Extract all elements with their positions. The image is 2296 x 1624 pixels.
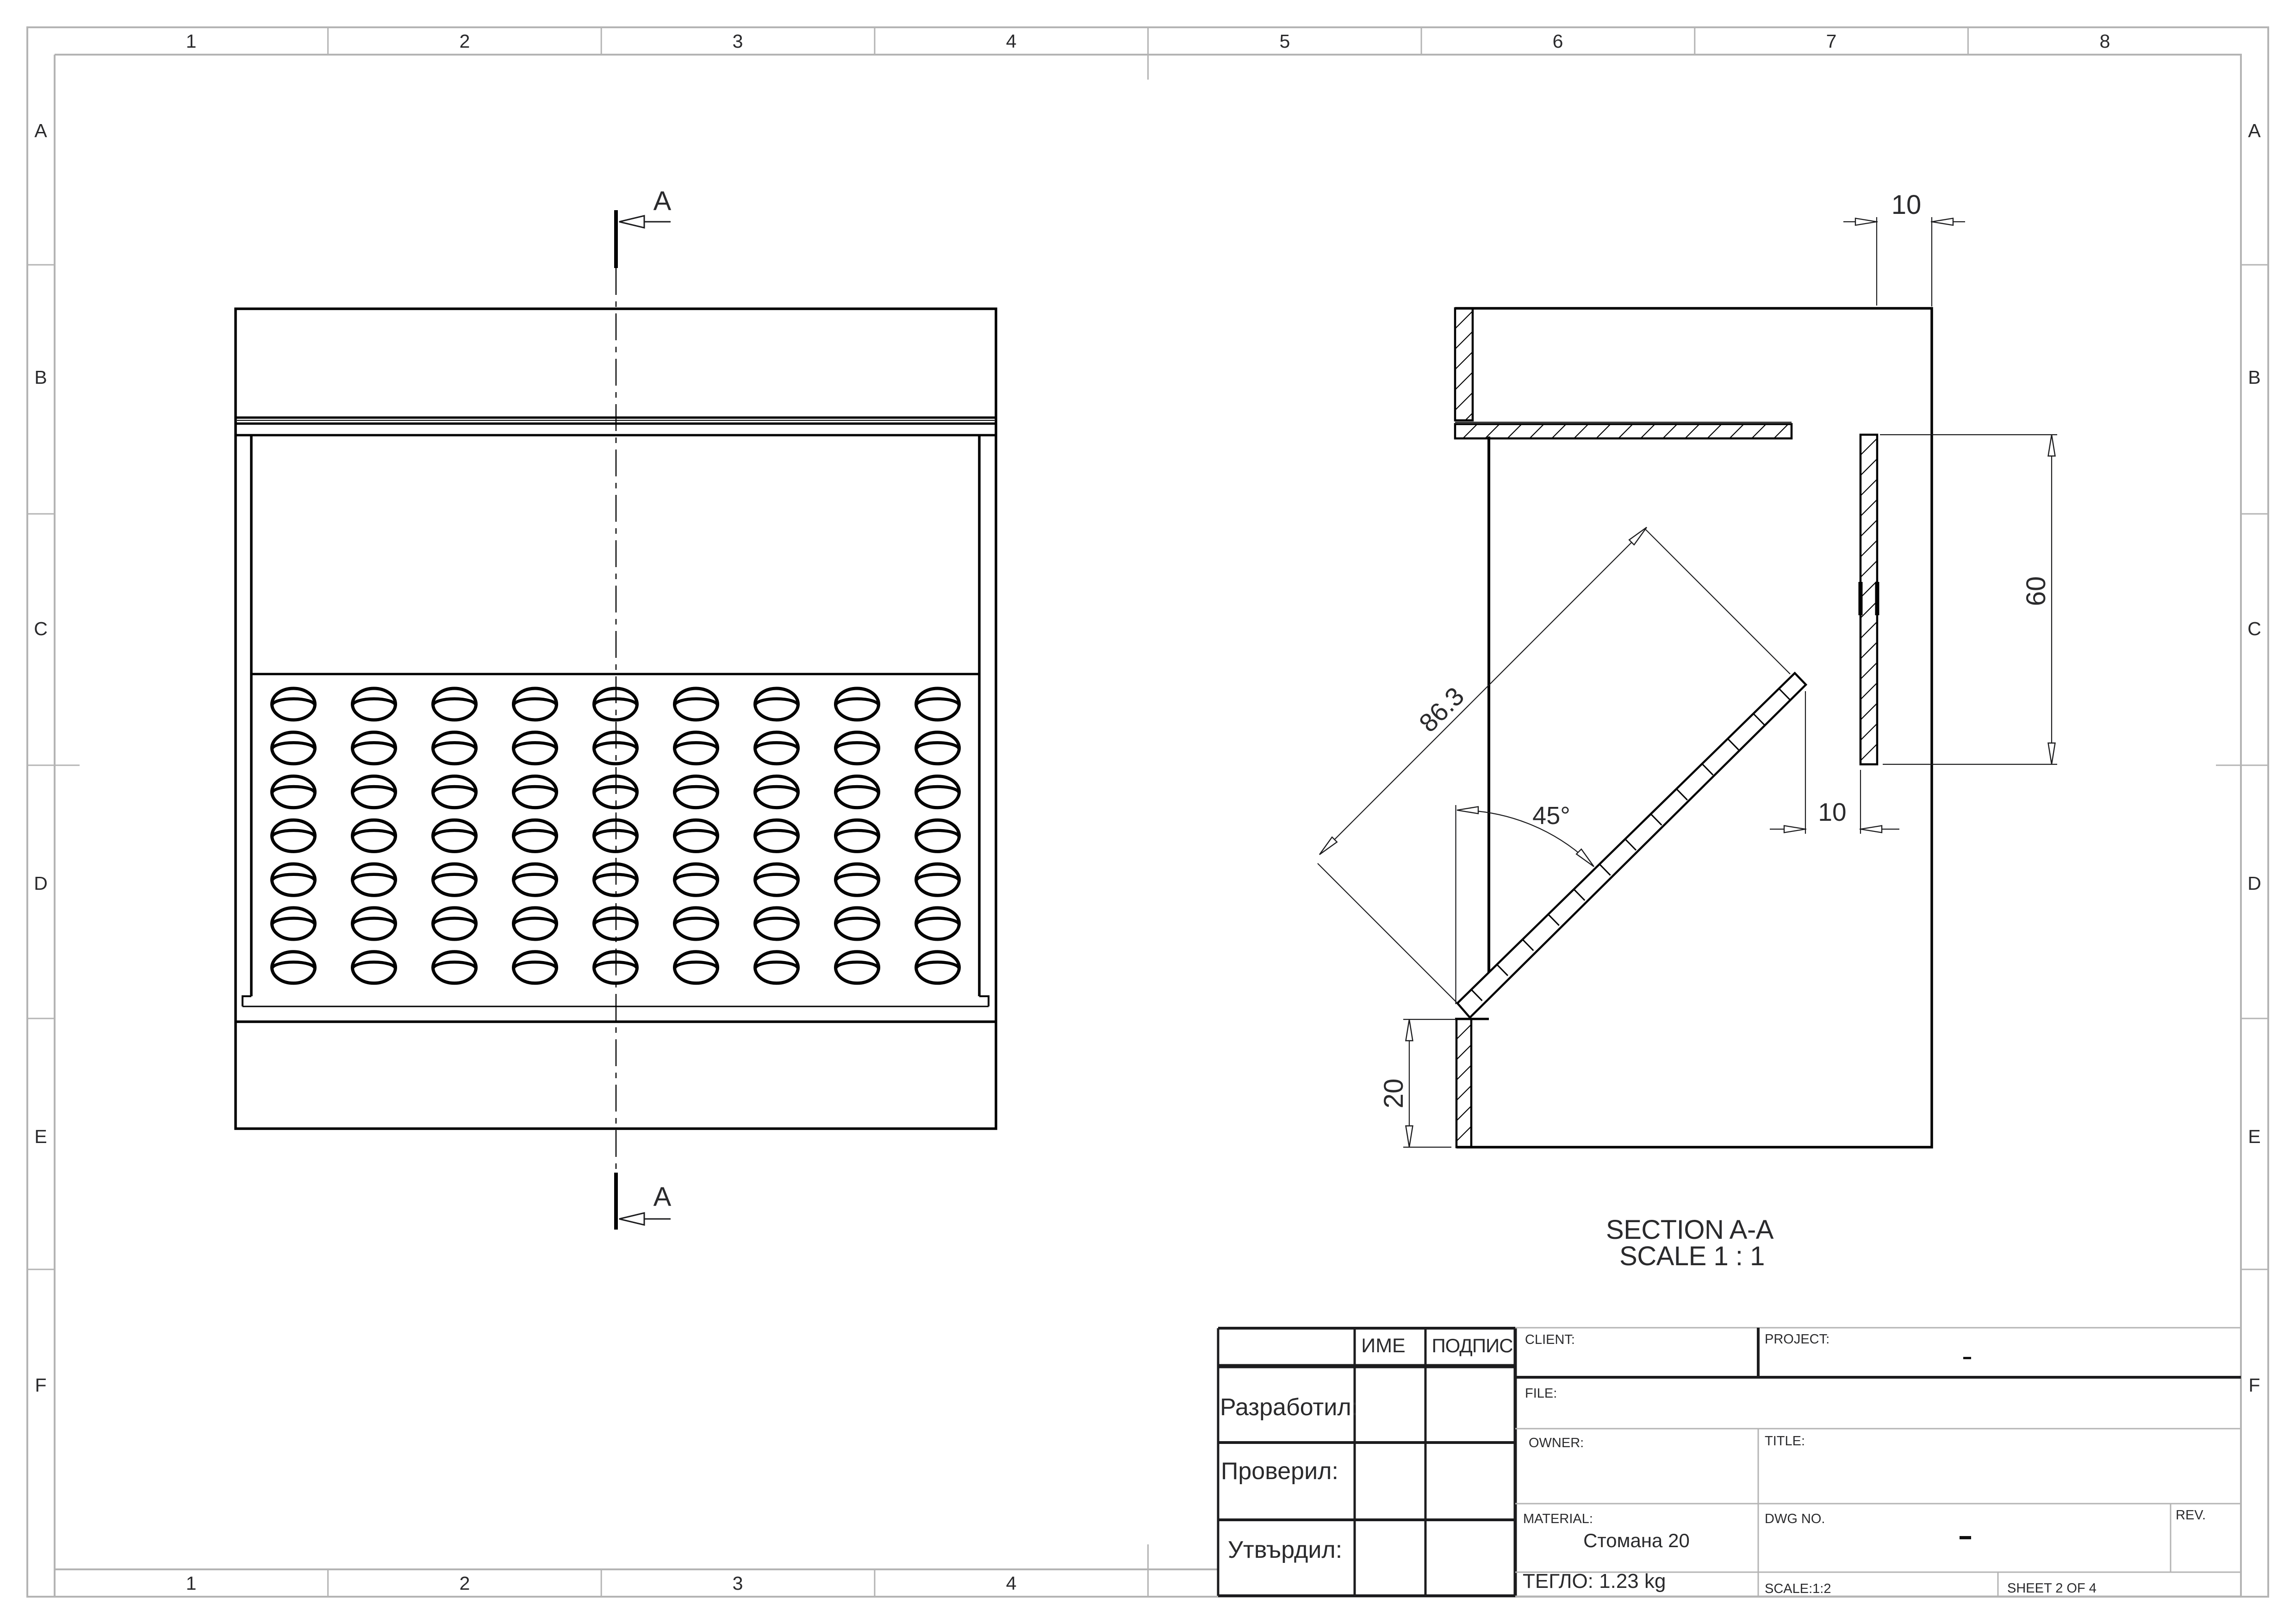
svg-text:Разработил:: Разработил: (1220, 1394, 1358, 1421)
svg-text:2: 2 (460, 31, 470, 52)
svg-text:3: 3 (733, 1573, 743, 1594)
svg-text:Стомана 20: Стомана 20 (1583, 1530, 1690, 1551)
svg-text:SHEET 2 OF 4: SHEET 2 OF 4 (2007, 1581, 2097, 1596)
svg-text:1: 1 (186, 1573, 197, 1594)
svg-text:PROJECT:: PROJECT: (1765, 1332, 1829, 1347)
svg-text:OWNER:: OWNER: (1529, 1436, 1584, 1450)
svg-text:4: 4 (1006, 31, 1017, 52)
svg-text:CLIENT:: CLIENT: (1525, 1332, 1575, 1347)
svg-text:B: B (34, 367, 47, 388)
svg-text:ИМЕ: ИМЕ (1361, 1335, 1405, 1357)
svg-text:TITLE:: TITLE: (1765, 1434, 1805, 1449)
svg-text:A: A (34, 120, 47, 141)
svg-text:SECTION A-A: SECTION A-A (1606, 1215, 1774, 1245)
svg-text:A: A (653, 1182, 672, 1212)
svg-text:SCALE 1 : 1: SCALE 1 : 1 (1619, 1241, 1765, 1271)
svg-text:20: 20 (1379, 1079, 1409, 1109)
svg-text:B: B (2248, 367, 2260, 388)
svg-text:D: D (2247, 873, 2261, 894)
svg-text:6: 6 (1553, 31, 1563, 52)
svg-text:60: 60 (2021, 576, 2051, 606)
svg-text:E: E (2248, 1126, 2260, 1147)
svg-text:ПОДПИС: ПОДПИС (1431, 1335, 1512, 1356)
svg-text:10: 10 (1818, 798, 1846, 826)
svg-text:10: 10 (1892, 190, 1922, 220)
svg-text:MATERIAL:: MATERIAL: (1523, 1512, 1593, 1526)
svg-text:SCALE:1:2: SCALE:1:2 (1765, 1581, 1831, 1596)
svg-text:F: F (35, 1374, 46, 1396)
svg-text:DWG NO.: DWG NO. (1765, 1512, 1825, 1526)
svg-text:FILE:: FILE: (1525, 1386, 1557, 1401)
svg-text:Проверил:: Проверил: (1221, 1458, 1338, 1485)
svg-text:1: 1 (186, 31, 197, 52)
svg-text:2: 2 (460, 1573, 470, 1594)
svg-text:D: D (34, 873, 48, 894)
svg-text:3: 3 (733, 31, 743, 52)
svg-text:5: 5 (1280, 31, 1290, 52)
svg-text:7: 7 (1826, 31, 1837, 52)
svg-text:A: A (653, 186, 672, 216)
svg-text:8: 8 (2100, 31, 2110, 52)
svg-text:ТЕГЛО: 1.23 kg: ТЕГЛО: 1.23 kg (1523, 1570, 1666, 1593)
svg-text:C: C (34, 618, 48, 639)
svg-text:Утвърдил:: Утвърдил: (1228, 1537, 1342, 1563)
svg-text:REV.: REV. (2176, 1508, 2206, 1523)
svg-text:45°: 45° (1532, 802, 1570, 830)
svg-text:F: F (2248, 1374, 2260, 1396)
svg-text:C: C (2247, 618, 2261, 639)
svg-text:4: 4 (1006, 1573, 1017, 1594)
svg-text:A: A (2248, 120, 2261, 141)
svg-text:E: E (34, 1126, 47, 1147)
